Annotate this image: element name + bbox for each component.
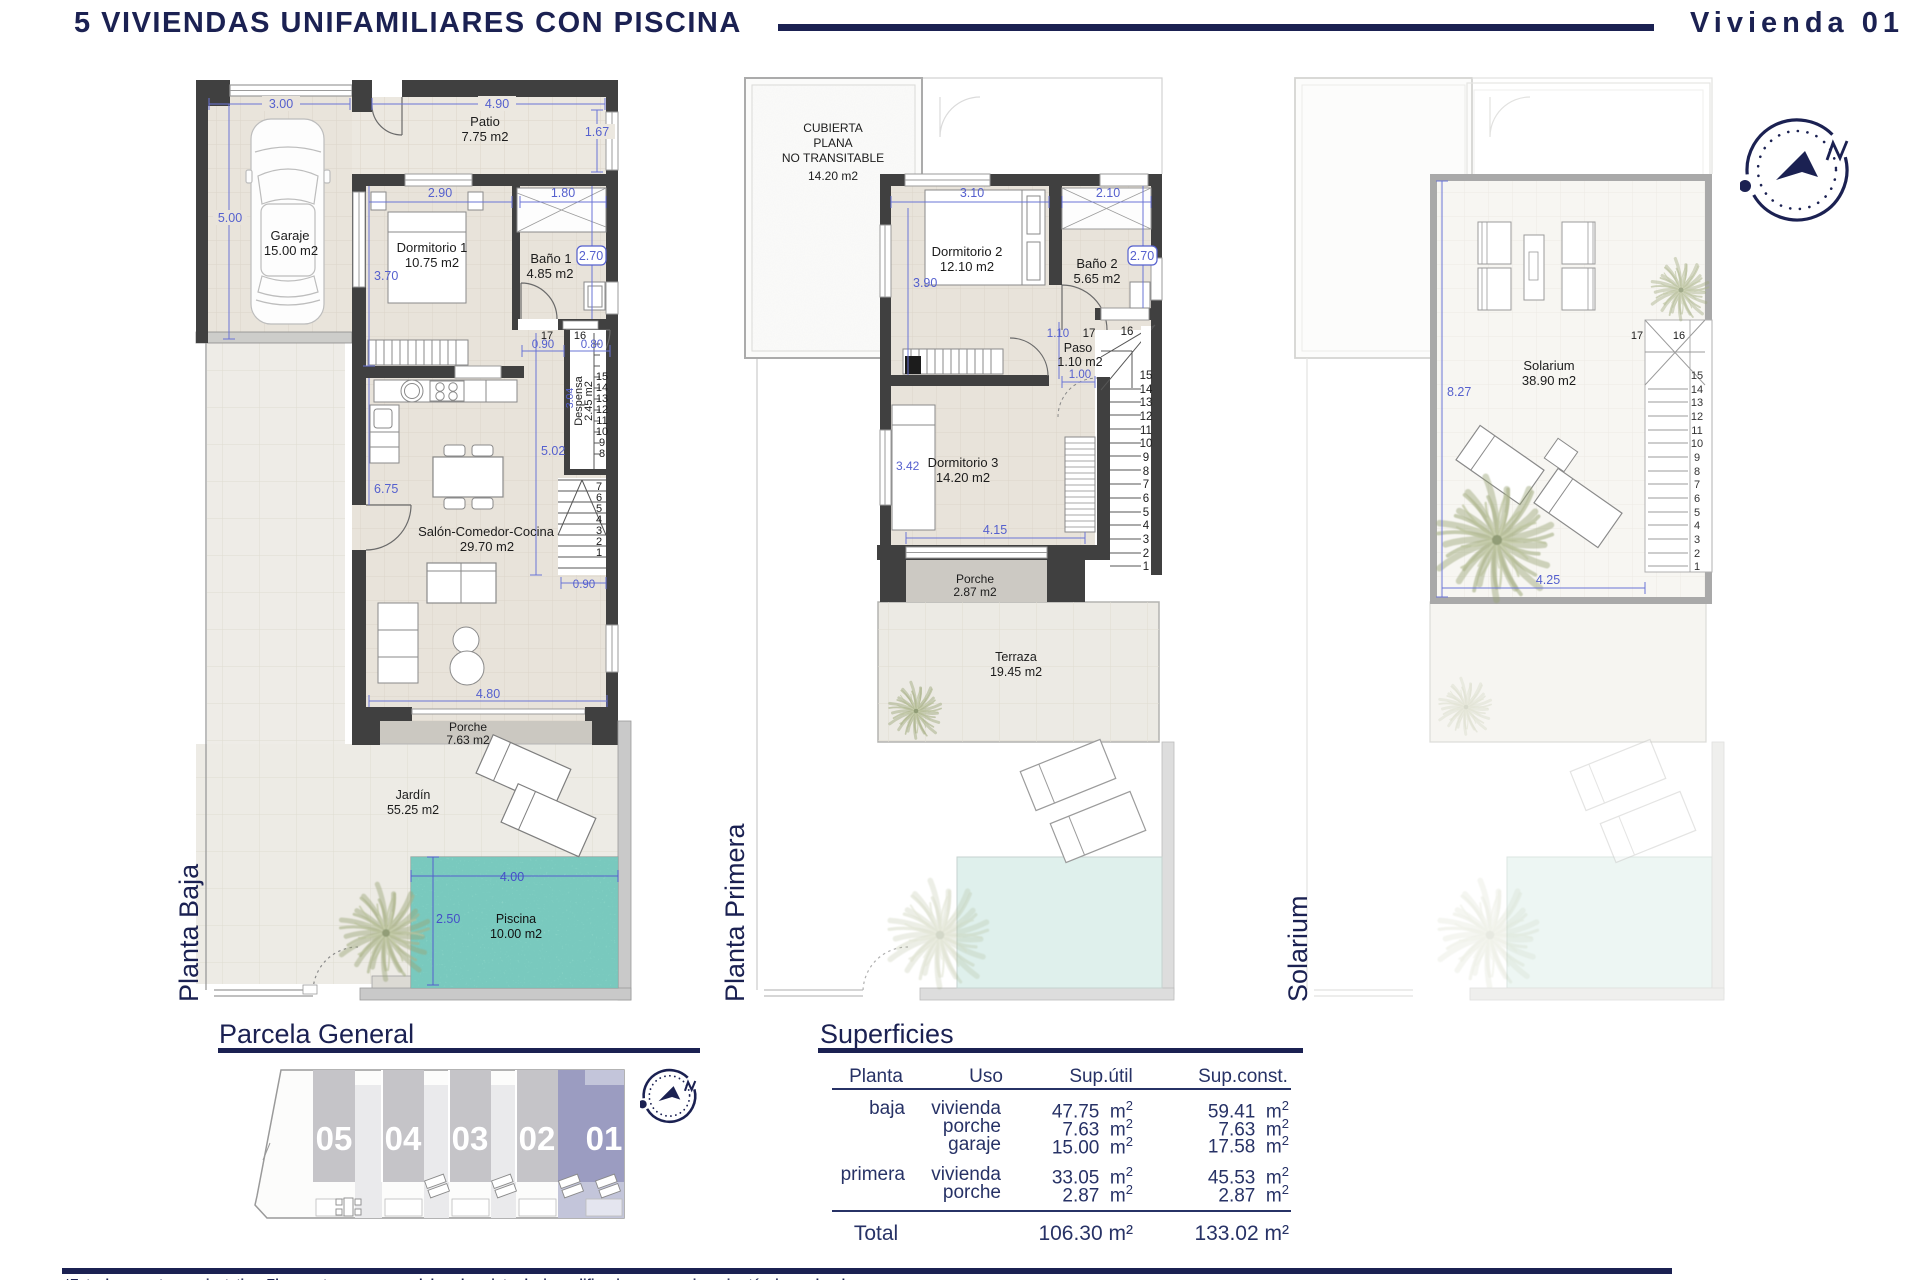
svg-text:3: 3 [1694,534,1700,546]
svg-text:NO TRANSITABLE: NO TRANSITABLE [782,151,884,165]
svg-text:2: 2 [1143,548,1149,560]
svg-text:14: 14 [1140,384,1153,396]
svg-text:1: 1 [596,547,602,559]
svg-text:8: 8 [599,448,605,460]
svg-text:Dormitorio 2: Dormitorio 2 [932,244,1003,259]
svg-text:12: 12 [1140,411,1153,423]
svg-text:Solarium: Solarium [1523,358,1574,373]
svg-text:Porche: Porche [449,720,487,734]
svg-text:2: 2 [1694,548,1700,560]
svg-text:Salón-Comedor-Cocina: Salón-Comedor-Cocina [418,524,555,539]
svg-text:5: 5 [1143,507,1149,519]
svg-text:13: 13 [1140,397,1153,409]
svg-text:Garaje: Garaje [270,228,309,243]
svg-text:Baño 1: Baño 1 [530,251,571,266]
svg-text:7: 7 [1694,479,1700,491]
svg-text:55.25 m2: 55.25 m2 [387,803,439,817]
svg-text:5.00: 5.00 [218,211,242,225]
svg-text:16: 16 [1121,326,1134,338]
svg-text:Jardín: Jardín [396,788,431,802]
svg-text:8: 8 [1694,466,1700,478]
svg-text:1.00: 1.00 [1069,369,1091,381]
svg-text:2.50: 2.50 [436,912,460,926]
svg-text:5: 5 [1694,507,1700,519]
svg-text:0.90: 0.90 [573,579,595,591]
svg-text:1.10: 1.10 [1047,328,1069,340]
svg-text:10.75 m2: 10.75 m2 [405,255,459,270]
svg-text:4.90: 4.90 [485,97,509,111]
svg-text:15: 15 [1691,370,1703,382]
svg-text:10.00 m2: 10.00 m2 [490,927,542,941]
svg-text:0.80: 0.80 [581,339,603,351]
svg-text:29.70 m2: 29.70 m2 [460,539,514,554]
svg-text:3.70: 3.70 [374,269,398,283]
svg-text:3.04: 3.04 [564,388,576,409]
svg-text:5.02: 5.02 [541,444,565,458]
svg-text:3.42: 3.42 [896,459,920,473]
svg-text:19.45 m2: 19.45 m2 [990,665,1042,679]
svg-text:Patio: Patio [470,114,500,129]
svg-text:4.00: 4.00 [500,870,524,884]
svg-text:9: 9 [1694,452,1700,464]
svg-text:10: 10 [1691,438,1703,450]
svg-text:4.80: 4.80 [476,687,500,701]
svg-text:05: 05 [316,1120,353,1157]
svg-text:1.67: 1.67 [585,125,609,139]
svg-text:9: 9 [1143,452,1149,464]
svg-text:Paso: Paso [1064,341,1093,355]
svg-text:Porche: Porche [956,572,994,586]
svg-text:4: 4 [1694,520,1700,532]
svg-text:7: 7 [1143,479,1149,491]
svg-text:03: 03 [452,1120,489,1157]
svg-text:5.65 m2: 5.65 m2 [1074,271,1121,286]
svg-text:Terraza: Terraza [995,650,1037,664]
svg-text:4: 4 [1143,520,1150,532]
svg-text:Dormitorio 1: Dormitorio 1 [397,240,468,255]
svg-text:17: 17 [1083,328,1096,340]
svg-text:4.25: 4.25 [1536,573,1560,587]
svg-text:6: 6 [1143,493,1149,505]
svg-text:1.80: 1.80 [551,186,575,200]
svg-text:2.70: 2.70 [1130,249,1154,263]
svg-text:PLANA: PLANA [813,136,852,150]
svg-text:11: 11 [1691,425,1702,437]
svg-text:2.10: 2.10 [1096,186,1120,200]
svg-text:7.75 m2: 7.75 m2 [462,129,509,144]
svg-text:6: 6 [1694,493,1700,505]
svg-text:3.10: 3.10 [960,186,984,200]
svg-text:13: 13 [1691,397,1703,409]
svg-text:4.15: 4.15 [983,523,1007,537]
svg-text:7.63 m2: 7.63 m2 [446,733,490,747]
svg-text:12.10 m2: 12.10 m2 [940,259,994,274]
svg-text:3.90: 3.90 [913,276,937,290]
svg-text:38.90 m2: 38.90 m2 [1522,373,1576,388]
svg-text:15: 15 [1140,370,1153,382]
svg-text:2.70: 2.70 [579,249,603,263]
svg-text:1.10 m2: 1.10 m2 [1057,355,1102,369]
svg-text:1: 1 [1694,561,1700,573]
svg-text:14: 14 [1691,384,1703,396]
svg-text:02: 02 [519,1120,556,1157]
svg-text:15.00 m2: 15.00 m2 [264,243,318,258]
svg-text:4.85 m2: 4.85 m2 [527,266,574,281]
svg-text:3: 3 [1143,534,1149,546]
svg-text:Piscina: Piscina [496,912,536,926]
svg-text:8.27: 8.27 [1447,385,1471,399]
svg-text:14.20 m2: 14.20 m2 [808,169,858,183]
svg-text:3.00: 3.00 [269,97,293,111]
svg-text:17: 17 [1631,330,1643,342]
svg-text:6.75: 6.75 [374,482,398,496]
svg-text:Baño 2: Baño 2 [1076,256,1117,271]
svg-text:2.90: 2.90 [428,186,452,200]
svg-text:1: 1 [1143,561,1149,573]
svg-text:8: 8 [1143,466,1149,478]
svg-text:Dormitorio 3: Dormitorio 3 [928,455,999,470]
svg-text:11: 11 [1140,425,1152,437]
svg-text:CUBIERTA: CUBIERTA [803,121,863,135]
svg-text:0.90: 0.90 [532,339,554,351]
svg-text:01: 01 [586,1120,623,1157]
svg-text:04: 04 [385,1120,422,1157]
svg-text:2.87 m2: 2.87 m2 [953,585,997,599]
svg-text:12: 12 [1691,411,1703,423]
svg-text:14.20 m2: 14.20 m2 [936,470,990,485]
svg-text:16: 16 [1673,330,1685,342]
svg-text:10: 10 [1140,438,1153,450]
svg-text:2.45 m2: 2.45 m2 [583,381,595,421]
